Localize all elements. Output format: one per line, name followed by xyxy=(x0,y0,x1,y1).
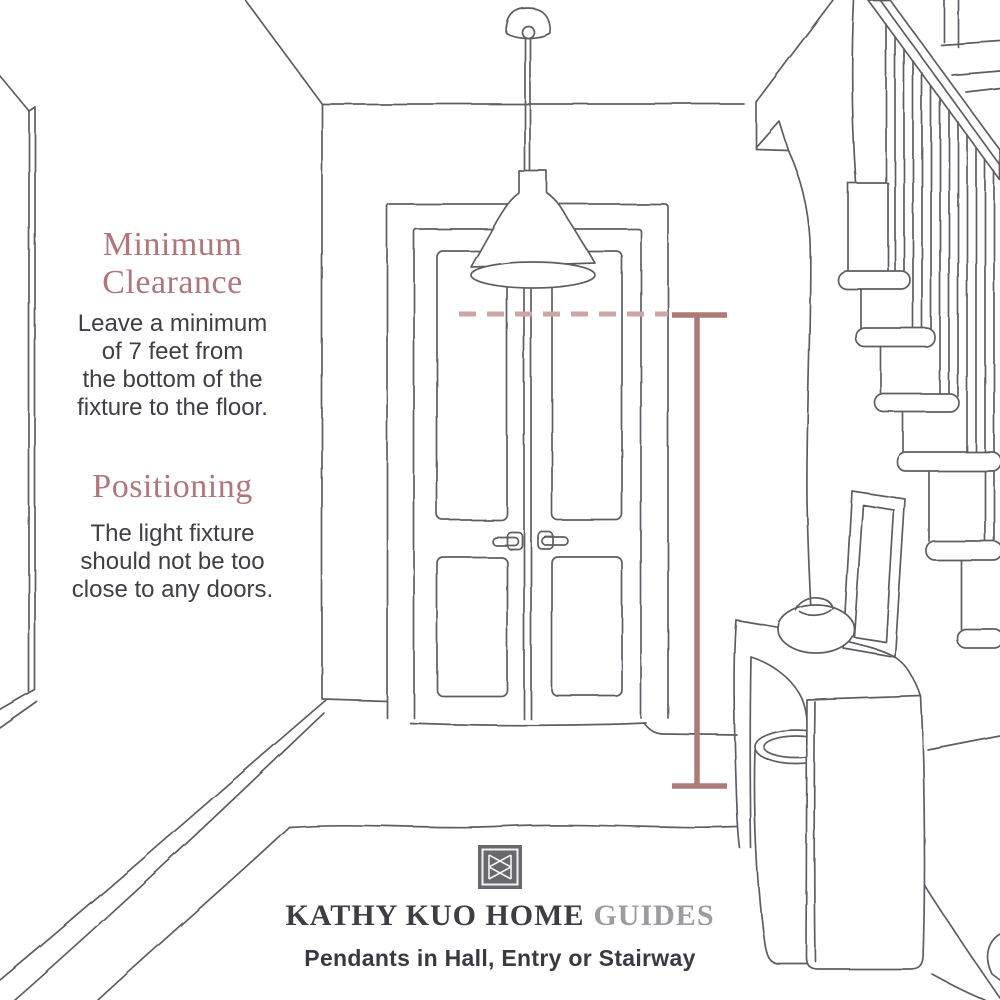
infographic-canvas: Minimum Clearance Leave a minimum of 7 f… xyxy=(0,0,1000,1000)
body-line: close to any doors. xyxy=(25,576,320,604)
upper-steps xyxy=(941,0,1000,92)
brand-series: GUIDES xyxy=(593,899,714,932)
cone-shade xyxy=(471,171,595,267)
positioning-body: The light fixture should not be too clos… xyxy=(25,520,320,604)
shade-rim xyxy=(471,262,595,288)
pendant-light xyxy=(471,8,595,288)
heading-line: Positioning xyxy=(25,468,320,506)
kathy-kuo-home-logo-icon xyxy=(478,845,522,889)
body-line: The light fixture xyxy=(25,520,320,548)
minimum-clearance-body: Leave a minimum of 7 feet from the botto… xyxy=(25,310,320,422)
heading-line: Minimum xyxy=(25,226,320,264)
body-line: the bottom of the xyxy=(25,366,320,394)
seven-foot-measurement-line xyxy=(672,315,727,786)
minimum-clearance-heading: Minimum Clearance xyxy=(25,226,320,302)
right-wall-opening xyxy=(756,0,833,612)
heading-line: Clearance xyxy=(25,264,320,302)
body-line: Leave a minimum xyxy=(25,310,320,338)
body-line: should not be too xyxy=(25,548,320,576)
guide-caption: Pendants in Hall, Entry or Stairway xyxy=(0,944,1000,972)
brand-title: KATHY KUO HOMEGUIDES xyxy=(0,899,1000,933)
newel-post xyxy=(848,183,888,275)
positioning-heading: Positioning xyxy=(25,468,320,506)
body-line: fixture to the floor. xyxy=(25,394,320,422)
door-panels xyxy=(437,251,622,696)
decor-bowl xyxy=(778,605,854,653)
door-handles xyxy=(492,532,568,549)
body-line: of 7 feet from xyxy=(25,338,320,366)
brand-name: KATHY KUO HOME xyxy=(285,899,584,932)
